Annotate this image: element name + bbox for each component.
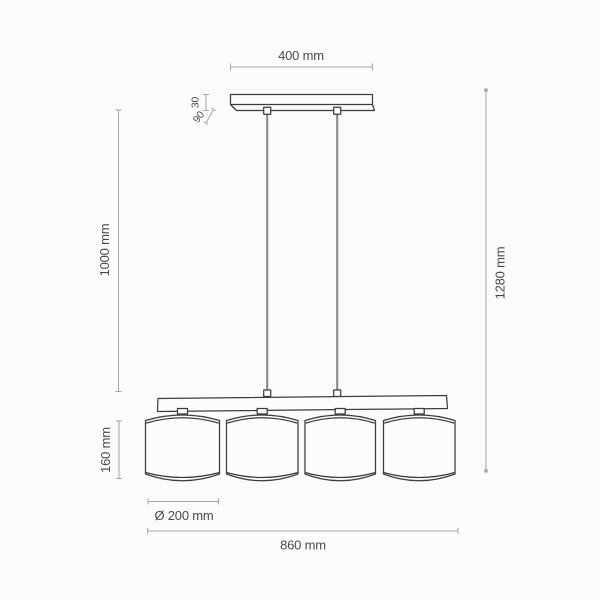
shade-height-label: 160 mm	[98, 427, 113, 473]
ceiling-canopy	[231, 95, 375, 111]
pendant-lamp-drawing: 400 mm 30 90 1000 mm	[0, 0, 600, 600]
dim-canopy-width: 400 mm	[231, 48, 373, 71]
hanging-bar	[158, 396, 448, 412]
dimension-drawing: 400 mm 30 90 1000 mm	[0, 0, 600, 600]
dim-shade-diameter: Ø 200 mm	[148, 499, 219, 524]
dim-canopy-thickness: 30	[190, 95, 210, 111]
shade-4	[384, 409, 456, 481]
shade-1	[146, 409, 220, 481]
overall-width-label: 860 mm	[280, 538, 326, 553]
suspension-length-label: 1000 mm	[97, 224, 112, 277]
overall-height-label: 1280 mm	[493, 247, 508, 300]
shade-diameter-label: Ø 200 mm	[154, 508, 213, 523]
dim-suspension-length: 1000 mm	[97, 110, 122, 392]
cable-left	[264, 107, 271, 396]
canopy-width-label: 400 mm	[278, 48, 324, 63]
dim-overall-height: 1280 mm	[484, 88, 507, 472]
canopy-depth-label: 90	[191, 109, 208, 126]
dim-overall-width: 860 mm	[148, 528, 459, 553]
shade-3	[305, 409, 376, 481]
canopy-thickness-label: 30	[190, 97, 202, 109]
shade-2	[227, 409, 299, 481]
dim-shade-height: 160 mm	[98, 421, 122, 479]
cable-right	[334, 107, 341, 396]
